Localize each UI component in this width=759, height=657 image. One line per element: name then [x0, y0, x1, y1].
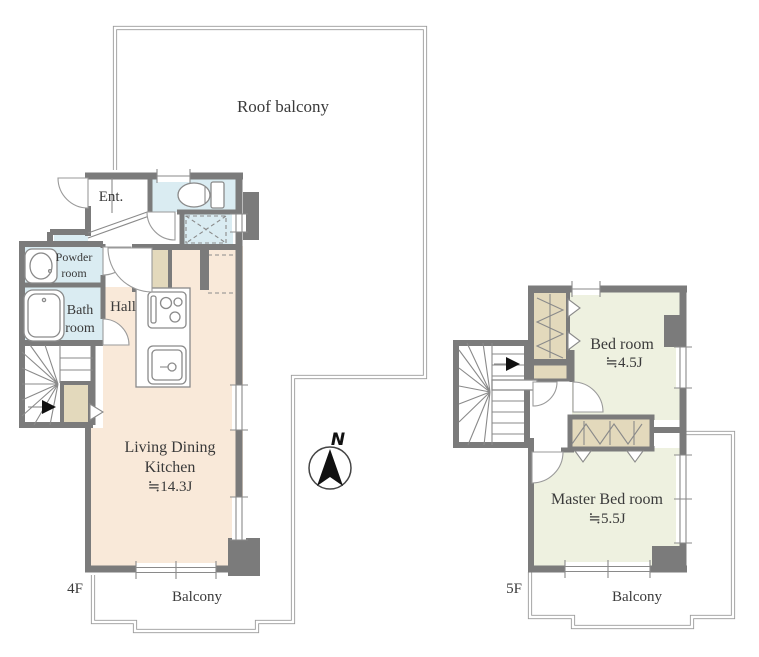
ldk-label-2: Kitchen: [145, 459, 196, 476]
floor-plan-canvas: Roof balcony Ent. Powder room Bath room …: [0, 0, 759, 657]
stove-icon: [148, 292, 186, 328]
bedroom-area-label: ≒4.5J: [605, 355, 642, 371]
window-balcony-sliding: [136, 561, 216, 579]
entrance-label: Ent.: [99, 189, 124, 205]
powder-room-label-2: room: [61, 266, 87, 280]
powder-room-label-1: Powder: [56, 250, 93, 264]
balcony-label-4f: Balcony: [172, 589, 222, 605]
master-bedroom-label: Master Bed room: [551, 491, 664, 508]
closet-small-5f: [532, 364, 568, 380]
master-bedroom-area-label: ≒5.5J: [588, 511, 625, 527]
floor-label-5f: 5F: [506, 581, 522, 597]
stair-landing-bar: [492, 380, 537, 390]
closet-horizontal-5f: [570, 417, 652, 449]
window-right-lower-5f: [674, 455, 692, 543]
window-right-1: [230, 385, 248, 430]
kitchen-sink-icon: [148, 346, 186, 384]
wall-stub-fridge: [200, 247, 209, 290]
window-right-2: [230, 497, 248, 540]
window-top: [157, 169, 190, 183]
balcony-label-5f: Balcony: [612, 589, 662, 605]
kitchen-counter: [136, 288, 190, 387]
corner-block-5f: [652, 546, 686, 572]
plan-5f: Bed room ≒4.5J Master Bed room ≒5.5J 5F …: [456, 281, 733, 627]
washer-space-floor: [182, 212, 233, 247]
floors-5f: [456, 291, 686, 570]
north-label: N: [331, 430, 345, 450]
bath-room-label-1: Bath: [67, 303, 93, 318]
bathtub-fixture: [24, 290, 64, 341]
plan-4f: Roof balcony Ent. Powder room Bath room …: [20, 28, 425, 631]
corner-block-4f: [228, 538, 260, 576]
closet-stair-4f: [62, 383, 90, 425]
compass: N: [309, 430, 351, 489]
ldk-label-1: Living Dining: [124, 439, 215, 456]
floor-label-4f: 4F: [67, 581, 83, 597]
window-right-upper-5f: [674, 347, 692, 388]
window-toilet-side: [230, 214, 248, 232]
hall-label: Hall: [110, 299, 136, 315]
roof-balcony-label: Roof balcony: [237, 97, 330, 116]
toilet-fixture: [178, 182, 224, 208]
bedroom-label: Bed room: [590, 336, 654, 353]
ldk-area-label: ≒14.3J: [148, 479, 193, 495]
bath-room-label-2: room: [65, 321, 95, 336]
pillar-bedroom: [664, 315, 686, 347]
window-top-5f: [572, 281, 600, 297]
powder-sink-fixture: [25, 249, 57, 283]
closet-door-triangle-4f: [90, 404, 103, 420]
window-balcony-sliding-5f: [565, 560, 650, 578]
